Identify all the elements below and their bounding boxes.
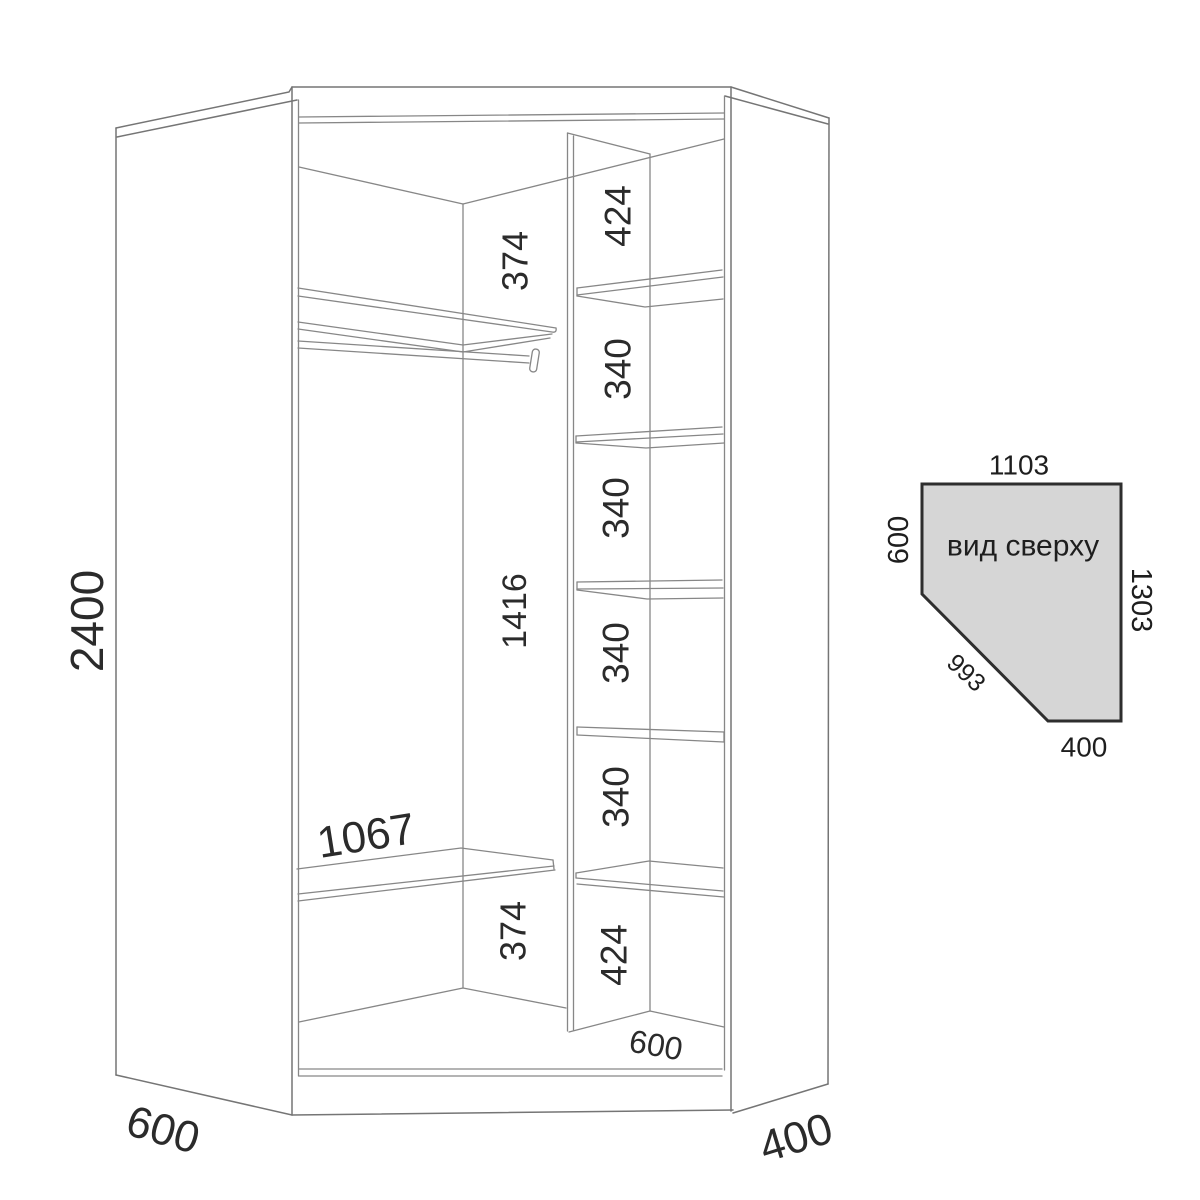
svg-text:600: 600 (121, 1096, 205, 1163)
svg-text:340: 340 (596, 622, 637, 684)
svg-text:600: 600 (627, 1023, 686, 1068)
svg-text:374: 374 (495, 231, 536, 291)
svg-text:374: 374 (493, 901, 534, 961)
svg-text:340: 340 (596, 766, 637, 828)
svg-text:424: 424 (594, 924, 635, 986)
svg-text:340: 340 (598, 338, 639, 400)
svg-text:1067: 1067 (314, 804, 418, 868)
svg-text:1416: 1416 (496, 573, 534, 649)
svg-text:400: 400 (754, 1104, 839, 1172)
svg-text:вид сверху: вид сверху (947, 530, 1099, 563)
svg-text:400: 400 (1061, 732, 1108, 763)
svg-text:600: 600 (883, 516, 915, 564)
svg-text:424: 424 (598, 185, 639, 247)
svg-text:340: 340 (596, 477, 637, 539)
svg-text:1103: 1103 (989, 450, 1049, 481)
svg-text:2400: 2400 (61, 570, 113, 672)
svg-text:1303: 1303 (1125, 568, 1157, 633)
